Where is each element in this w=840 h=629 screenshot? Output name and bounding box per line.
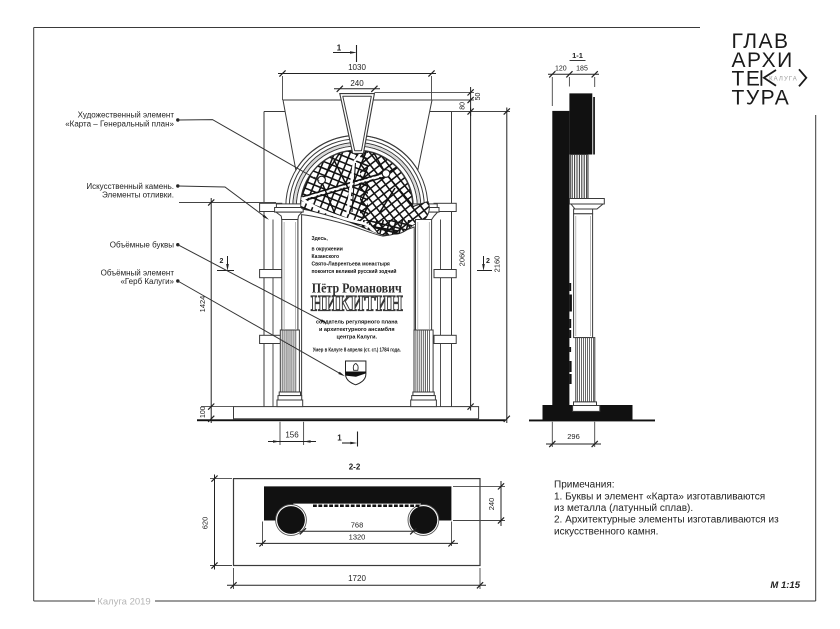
svg-text:2160: 2160 (493, 256, 502, 273)
svg-text:Казанского: Казанского (312, 254, 340, 260)
svg-text:1. Буквы и элемент «Карта» изг: 1. Буквы и элемент «Карта» изготавливают… (554, 491, 765, 502)
svg-text:240: 240 (350, 79, 364, 88)
svg-text:Умер в Калуге 8 апреля (ст. ст: Умер в Калуге 8 апреля (ст. ст.) 1784 го… (313, 348, 402, 354)
svg-text:296: 296 (567, 432, 580, 441)
svg-text:Художественный элемент: Художественный элемент (78, 111, 175, 120)
svg-text:создатель регулярного плана: создатель регулярного плана (316, 320, 399, 326)
svg-text:50: 50 (475, 93, 482, 101)
svg-text:2: 2 (220, 258, 224, 265)
svg-text:и архитектурного ансамбля: и архитектурного ансамбля (319, 326, 395, 333)
svg-text:620: 620 (201, 517, 210, 530)
svg-text:1: 1 (337, 44, 342, 53)
svg-text:НИКИТИН: НИКИТИН (311, 291, 403, 316)
svg-text:1720: 1720 (348, 574, 366, 583)
svg-text:1030: 1030 (348, 63, 366, 72)
svg-text:«Карта – Генеральный план»: «Карта – Генеральный план» (65, 120, 174, 129)
svg-text:2060: 2060 (458, 250, 467, 267)
svg-text:Элементы отливки.: Элементы отливки. (102, 191, 174, 200)
svg-text:искусственного камня.: искусственного камня. (554, 526, 658, 537)
svg-text:1424: 1424 (198, 296, 207, 313)
svg-text:из металла (латунный сплав).: из металла (латунный сплав). (554, 503, 693, 514)
svg-text:1: 1 (337, 434, 342, 443)
svg-text:240: 240 (487, 498, 496, 511)
svg-text:80: 80 (460, 102, 467, 110)
svg-text:Объёмные буквы: Объёмные буквы (110, 241, 174, 250)
svg-text:120: 120 (555, 66, 567, 73)
svg-text:«Герб Калуги»: «Герб Калуги» (120, 277, 174, 286)
svg-text:в окружении: в окружении (312, 247, 343, 253)
svg-text:центра Калуги.: центра Калуги. (337, 335, 378, 341)
svg-text:ТЕ: ТЕ (732, 68, 762, 91)
svg-text:156: 156 (285, 431, 299, 440)
svg-text:М 1:15: М 1:15 (770, 580, 800, 591)
svg-text:768: 768 (351, 521, 364, 530)
svg-text:Примечания:: Примечания: (554, 480, 615, 491)
svg-text:100: 100 (200, 406, 207, 418)
svg-text:покоится великий русский зодчи: покоится великий русский зодчий (312, 268, 397, 275)
svg-text:185: 185 (576, 66, 588, 73)
svg-text:Здесь,: Здесь, (312, 236, 329, 242)
svg-text:Калуга 2019: Калуга 2019 (97, 597, 150, 608)
svg-text:КАЛУГА: КАЛУГА (769, 76, 798, 82)
svg-text:2-2: 2-2 (349, 463, 361, 472)
svg-text:1320: 1320 (349, 533, 366, 542)
svg-text:Свято-Лаврентьева монастыря: Свято-Лаврентьева монастыря (312, 262, 390, 268)
svg-text:1-1: 1-1 (572, 51, 583, 60)
svg-text:2. Архитектурные элементы изго: 2. Архитектурные элементы изготавливаютс… (554, 515, 779, 526)
svg-text:2: 2 (486, 258, 490, 265)
